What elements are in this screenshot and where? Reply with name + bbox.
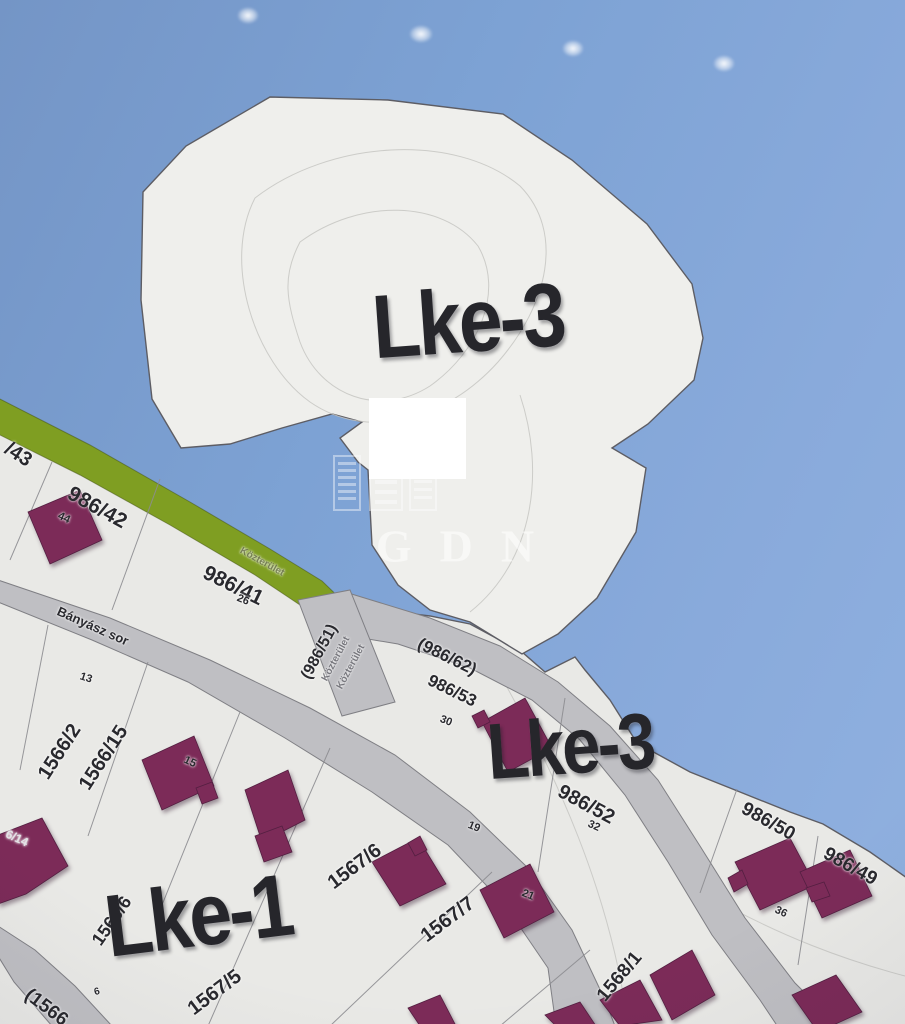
parcel-986-49: 986/49 (819, 843, 881, 890)
parcel-1567-5: 1567/5 (184, 965, 247, 1020)
parcel-1568-1: 1568/1 (593, 948, 647, 1007)
map-stage: /43986/42986/41(986/51)(986/62)986/53986… (0, 0, 905, 1024)
housenum-30: 30 (438, 713, 454, 729)
housenum-15: 15 (182, 754, 198, 770)
housenum-6-14: 6/14 (3, 827, 30, 850)
zone-label-lke1: Lke-1 (99, 854, 296, 977)
zone-label-lke3-lower: Lke-3 (484, 696, 656, 798)
parcel-986-41: 986/41 (199, 561, 267, 611)
housenum-13: 13 (78, 670, 93, 685)
label-layer: /43986/42986/41(986/51)(986/62)986/53986… (0, 0, 905, 1024)
street-banyasz-sor: Bányász sor (55, 604, 131, 649)
zone-label-lke3-upper: Lke-3 (369, 264, 567, 380)
parcel-1567-7: 1567/7 (417, 892, 480, 947)
housenum-19: 19 (466, 819, 482, 835)
parcel-986-42: 986/42 (63, 482, 131, 534)
road-label-1566: (1566 (20, 985, 72, 1024)
housenum-6: 6 (93, 986, 101, 998)
housenum-21: 21 (520, 887, 536, 903)
parcel-1567-6: 1567/6 (324, 839, 387, 894)
parcel-43: /43 (0, 438, 36, 472)
parcel-986-62: (986/62) (414, 634, 480, 680)
housenum-44: 44 (56, 510, 72, 526)
parcel-986-50: 986/50 (737, 798, 799, 845)
street-kozterulet-green: Közterület (238, 545, 286, 578)
housenum-36: 36 (773, 904, 789, 920)
blank-overlay-box (369, 398, 466, 479)
